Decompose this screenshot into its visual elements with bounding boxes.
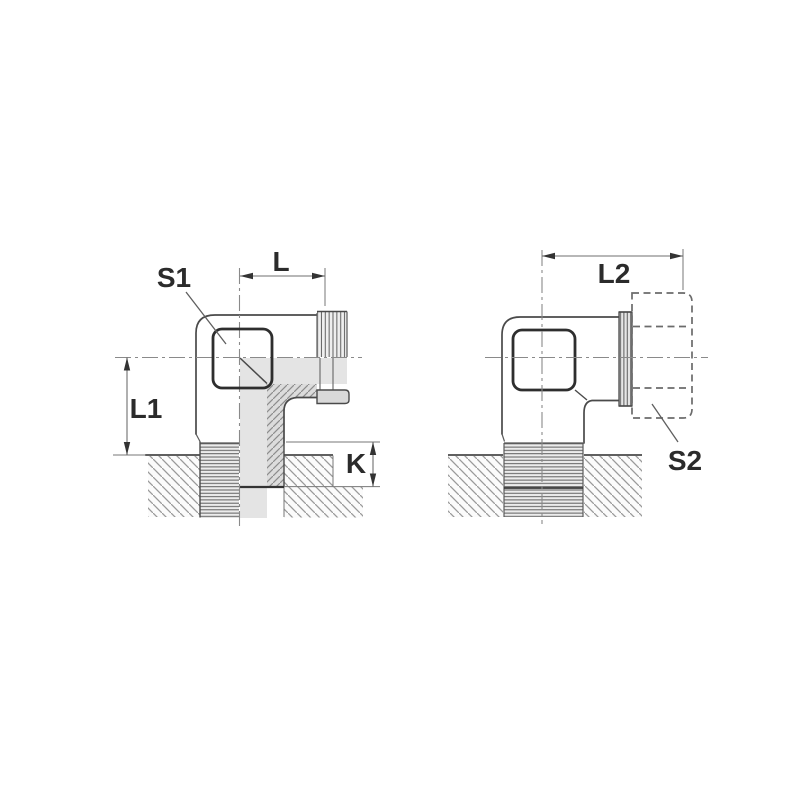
dim-L1-arrow-bottom: [124, 442, 130, 455]
dim-L-arrow-left: [240, 273, 253, 279]
mounting-surface-hatch-left: [448, 456, 503, 517]
label-l1: L1: [130, 393, 163, 424]
dim-L-arrow-right: [312, 273, 325, 279]
dim-L2-arrow-left: [542, 253, 555, 259]
mounting-surface-hatch-right: [584, 456, 642, 517]
leader-s1: [186, 292, 226, 344]
body-chamfer-left: [502, 434, 505, 442]
body-outline-bottom: [284, 398, 317, 444]
dim-K-arrow-bottom: [370, 474, 376, 487]
stud-thread: [200, 443, 239, 518]
label-k: K: [346, 448, 366, 479]
bore-section-vertical: [240, 384, 267, 518]
body-outline-top: [502, 317, 619, 434]
dim-L2: L2: [542, 249, 683, 290]
mounting-surface-hatch-left: [148, 456, 200, 517]
side-port-thread: [317, 311, 347, 357]
body-chamfer-left: [196, 434, 200, 442]
label-l: L: [272, 246, 289, 277]
socket-chamfer-edge: [575, 390, 587, 400]
hex-socket-outline: [513, 330, 575, 390]
dim-L: L: [240, 246, 325, 306]
dim-K-arrow-top: [370, 442, 376, 455]
label-l2: L2: [598, 258, 631, 289]
bore-section-horizontal: [240, 358, 347, 384]
collar-serration: [619, 312, 632, 406]
nut-dashed: [632, 293, 692, 418]
dim-L2-arrow-right: [670, 253, 683, 259]
side-port-nose: [317, 390, 349, 404]
left-view: S1 L L1 K: [113, 246, 380, 526]
dim-L1-arrow-top: [124, 358, 130, 371]
drawing-canvas: S1 L L1 K: [0, 0, 800, 800]
fitting-diagram: S1 L L1 K: [0, 0, 800, 800]
leader-s2: [652, 404, 678, 442]
label-s1: S1: [157, 262, 191, 293]
label-s2: S2: [668, 445, 702, 476]
right-view: L2 S2: [448, 249, 708, 524]
nut-dashed-outline: [632, 293, 692, 418]
stud-thread: [504, 443, 583, 517]
dim-L1: L1: [113, 358, 162, 456]
body-outline-bottom: [584, 401, 619, 444]
